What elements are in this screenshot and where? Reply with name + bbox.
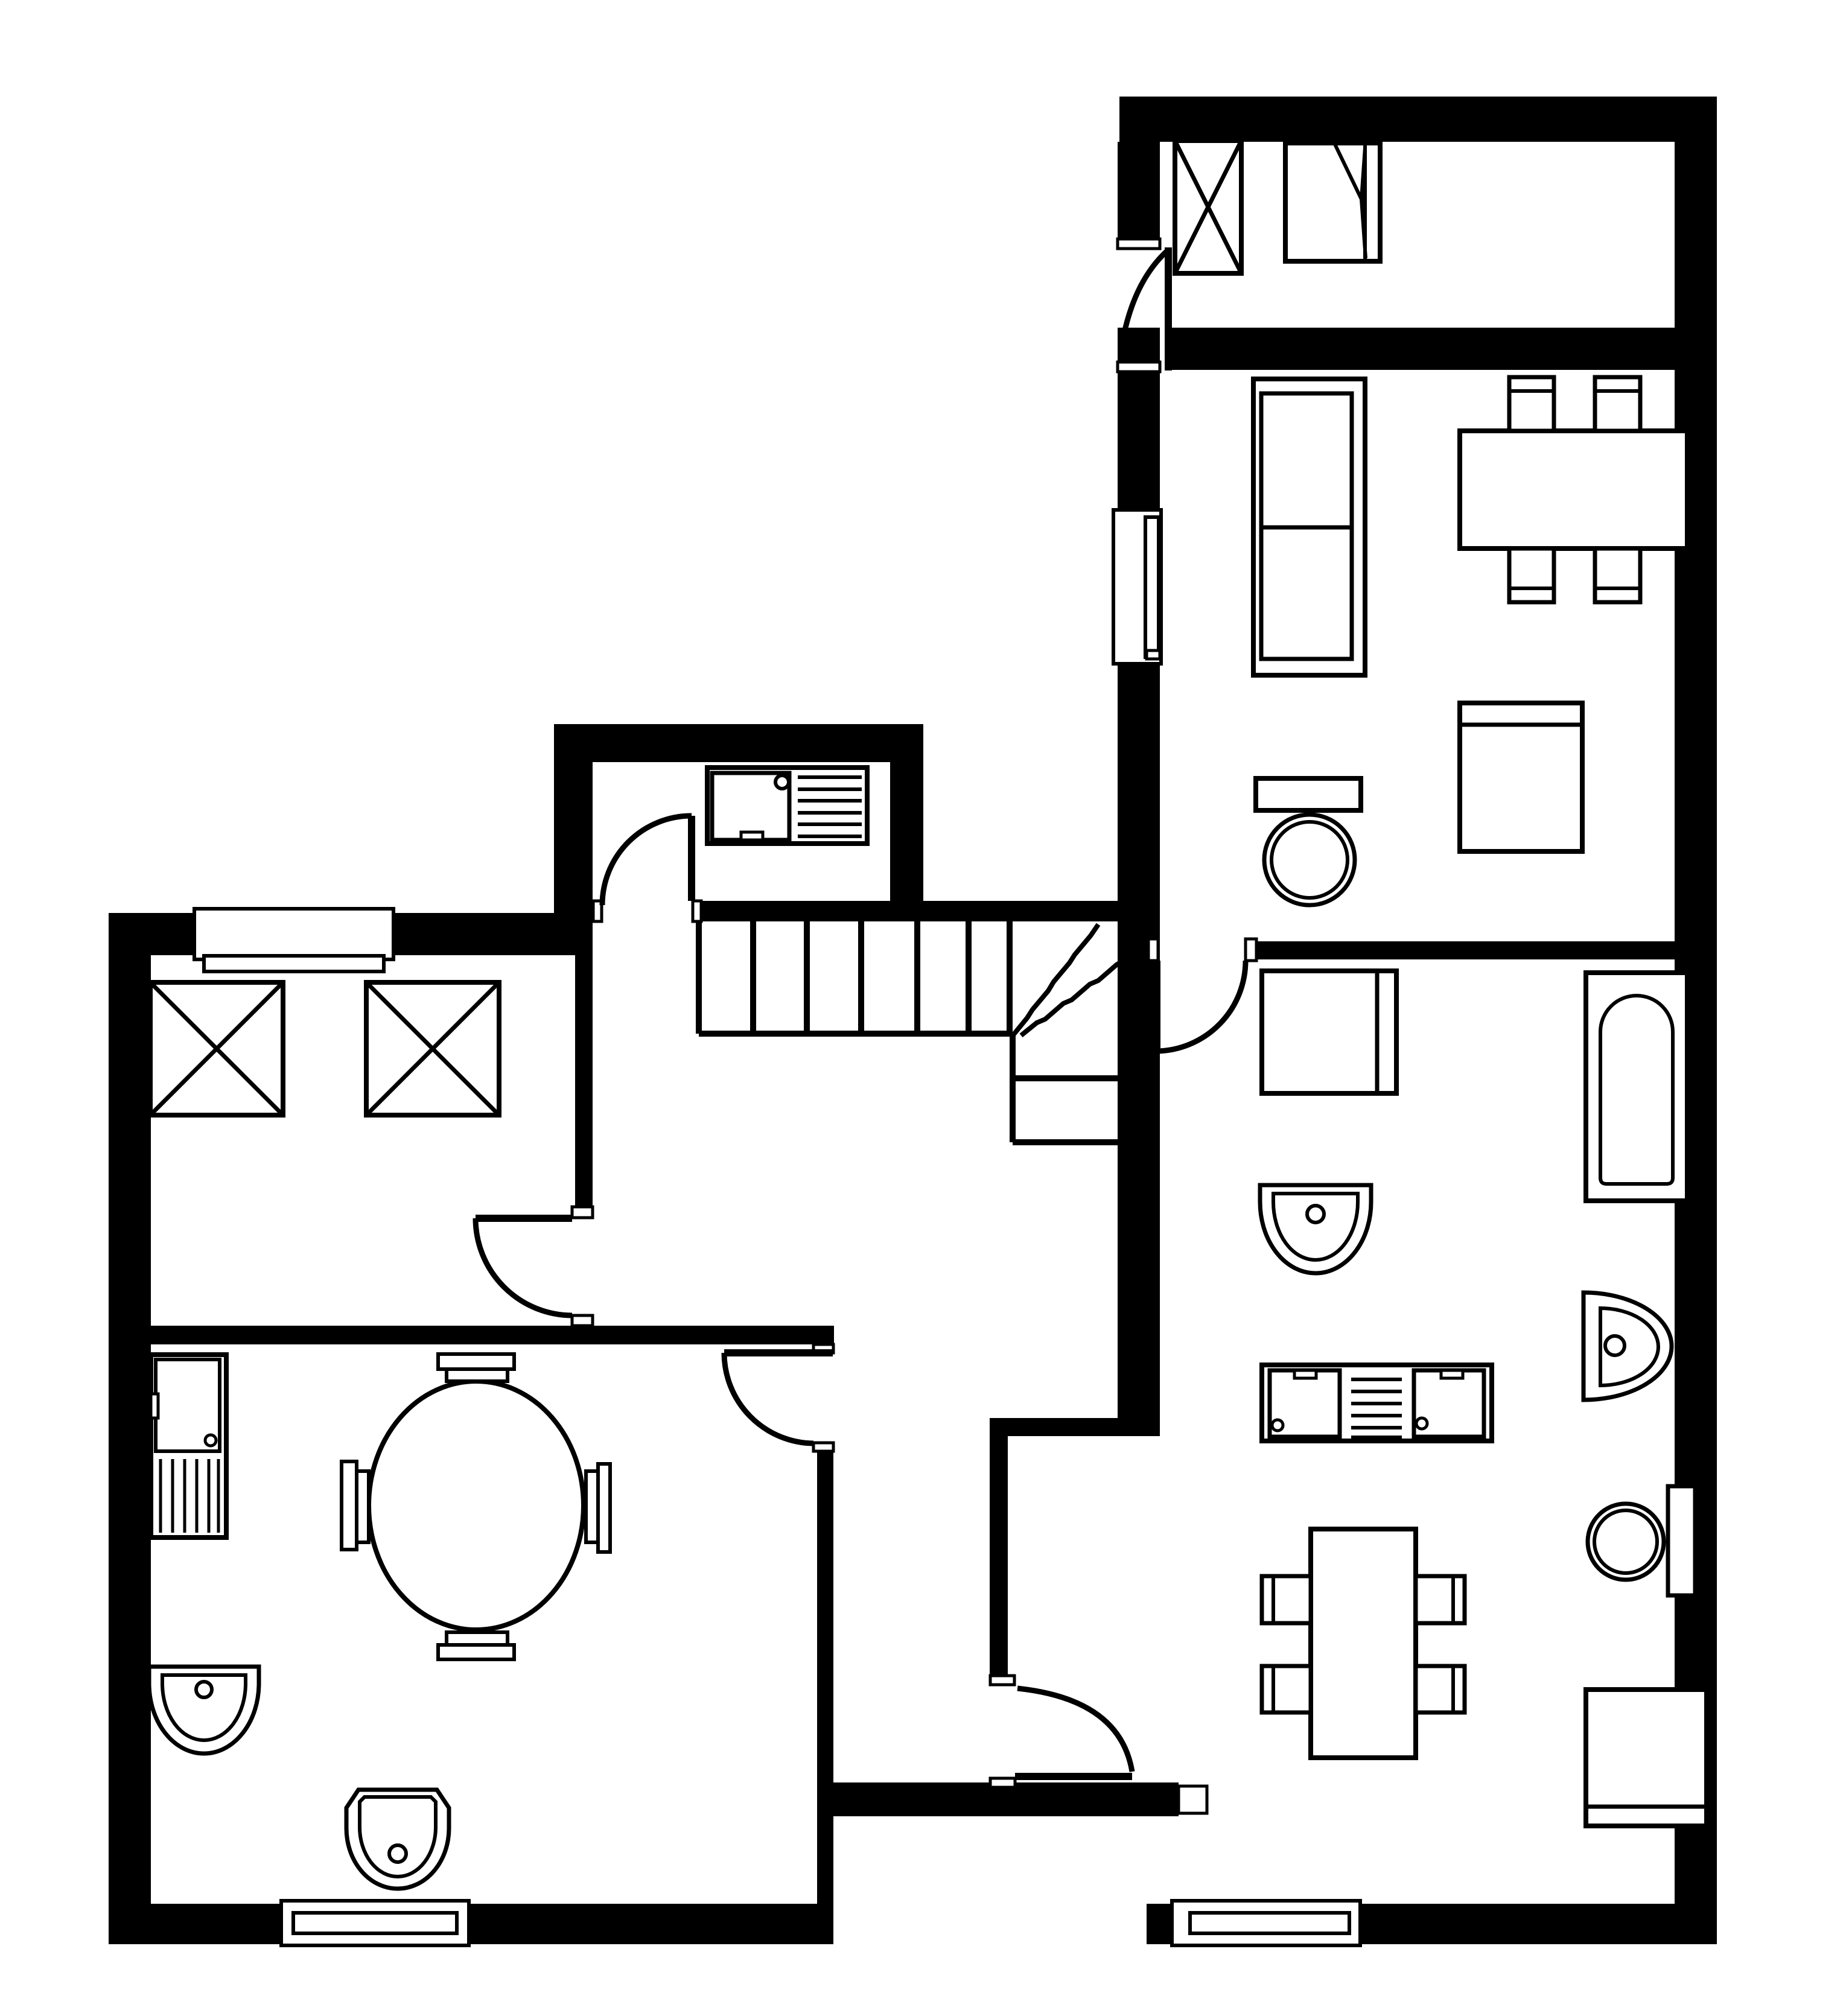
dining-table bbox=[1311, 1529, 1416, 1758]
jamb-corridor-door-bottom bbox=[990, 1778, 1015, 1787]
round-table-chair-w-seat bbox=[357, 1471, 369, 1542]
window-living-west-inner bbox=[1145, 517, 1159, 657]
sinkroom-drain-notch bbox=[741, 832, 763, 840]
round-table-chair-e-bar bbox=[598, 1464, 610, 1552]
bathtub-inner bbox=[1600, 996, 1673, 1184]
wall-bedroom-divider bbox=[1171, 328, 1717, 370]
wall-sinkroom-east bbox=[890, 762, 923, 901]
wall-south-mid-seg bbox=[468, 1904, 833, 1944]
kitchen-sink-notch-right bbox=[1441, 1370, 1463, 1378]
wall-corridor-east bbox=[990, 1436, 1008, 1685]
jamb-corridor-south-end bbox=[1179, 1786, 1207, 1813]
jamb-bedroom-door-bottom bbox=[1118, 362, 1160, 372]
jamb-bedroom-door-top bbox=[1118, 239, 1160, 249]
living-stool-inner bbox=[1272, 822, 1348, 898]
door-arc-living-kitchen bbox=[1157, 961, 1246, 1051]
wall-stairs-north bbox=[700, 901, 1148, 921]
bottomleft-appliance-handle bbox=[151, 1394, 158, 1418]
round-table-chair-w-bar bbox=[342, 1461, 357, 1550]
wall-south-east-seg bbox=[1359, 1904, 1717, 1944]
door-arc-bedroom bbox=[1124, 250, 1168, 335]
floor-plan-page bbox=[0, 0, 1846, 2016]
window-leftroom-north-sill bbox=[204, 956, 384, 971]
dining-console bbox=[1668, 1486, 1695, 1595]
jamb-leftroom-door-top bbox=[572, 1207, 593, 1218]
dining-chair-w2 bbox=[1262, 1666, 1311, 1712]
wall-west-bedroom-upper bbox=[1118, 142, 1160, 247]
washbasin-south-faucet bbox=[389, 1845, 406, 1862]
washbasin-west-faucet bbox=[196, 1682, 212, 1697]
wall-leftroom-east bbox=[575, 955, 593, 1208]
wall-south-stub bbox=[1147, 1904, 1174, 1944]
sinkroom-faucet bbox=[775, 775, 789, 789]
door-arc-corridor-dining bbox=[1017, 1688, 1132, 1772]
washbasin-south-inner bbox=[360, 1797, 436, 1877]
living-chair-n1 bbox=[1509, 377, 1554, 431]
door-arc-hall-bottomleft bbox=[724, 1353, 813, 1443]
kitchen-sink-drain-left bbox=[1272, 1420, 1283, 1431]
wall-hall-south-divider bbox=[109, 1326, 834, 1344]
living-chair-n2 bbox=[1595, 377, 1640, 431]
window-bottomleft-south-inner bbox=[293, 1913, 457, 1933]
jamb-livkitchen-door-west bbox=[1148, 939, 1158, 961]
dining-chair-e1 bbox=[1416, 1576, 1465, 1623]
dining-chair-e2 bbox=[1416, 1666, 1465, 1712]
round-table-chair-s-bar bbox=[438, 1645, 514, 1659]
window-dining-south-inner bbox=[1190, 1913, 1349, 1933]
window-living-west-cap bbox=[1147, 650, 1160, 659]
door-arc-sinkroom bbox=[602, 816, 692, 905]
washbasin-kitchen-faucet bbox=[1307, 1206, 1324, 1223]
wall-sinkroom-north bbox=[554, 724, 923, 762]
washbasin-east-faucet bbox=[1605, 1336, 1625, 1355]
wall-south-west-seg bbox=[109, 1904, 284, 1944]
living-chair-s2 bbox=[1595, 549, 1640, 602]
wall-west-living-upper bbox=[1118, 328, 1160, 513]
round-table-chair-s-seat bbox=[447, 1632, 508, 1645]
round-table-chair-n-bar bbox=[438, 1354, 514, 1369]
wall-sinkroom-west bbox=[554, 762, 593, 921]
wall-leftroom-north-east bbox=[391, 913, 593, 955]
jamb-hall-door-bottom bbox=[813, 1443, 833, 1451]
stair-break-line-2 bbox=[1021, 958, 1127, 1035]
dining-chair-w1 bbox=[1262, 1576, 1311, 1623]
jamb-sink-door-east bbox=[693, 901, 701, 921]
door-arc-leftroom bbox=[476, 1218, 572, 1315]
wall-living-kitchen-divider bbox=[1256, 941, 1717, 959]
living-chair-s1 bbox=[1509, 549, 1554, 602]
kitchen-sink-notch-left bbox=[1294, 1370, 1316, 1378]
kitchen-sink-drain-right bbox=[1416, 1418, 1427, 1429]
jamb-leftroom-door-bottom bbox=[572, 1315, 593, 1326]
dining-round-chair-inner bbox=[1594, 1510, 1657, 1573]
wall-west-living-lower bbox=[1118, 661, 1160, 921]
wall-topright-north bbox=[1119, 97, 1717, 142]
wall-hall-jog bbox=[990, 1418, 1160, 1436]
round-table bbox=[369, 1381, 584, 1630]
jamb-livkitchen-door-east bbox=[1246, 939, 1256, 961]
living-side-table bbox=[1256, 778, 1361, 810]
living-table bbox=[1460, 431, 1687, 549]
stair-break-line-1 bbox=[1014, 924, 1098, 1034]
jamb-corridor-door-top bbox=[990, 1676, 1014, 1685]
bottomleft-appliance-knob bbox=[205, 1435, 216, 1446]
wall-west-outer bbox=[109, 913, 151, 1944]
wall-corridor-west bbox=[817, 1451, 833, 1904]
floor-plan-canvas bbox=[0, 0, 1846, 2016]
window-leftroom-north bbox=[194, 909, 393, 959]
round-table-chair-n-seat bbox=[447, 1369, 508, 1381]
